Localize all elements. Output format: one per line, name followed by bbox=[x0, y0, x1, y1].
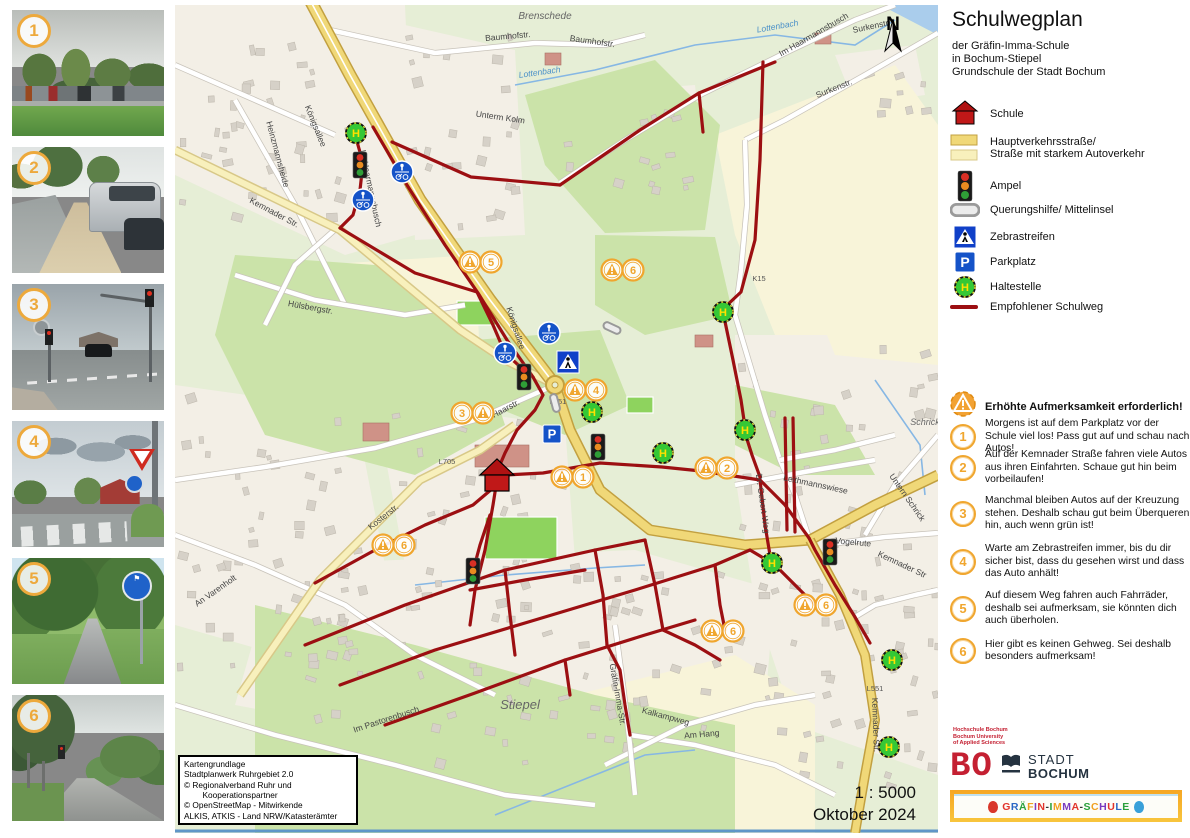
building bbox=[409, 59, 415, 65]
map-label-k15: K15 bbox=[752, 274, 765, 283]
map-label-baumhofstr-: Baumhofstr. bbox=[485, 29, 531, 43]
building bbox=[458, 223, 463, 230]
photo-3: 3 bbox=[12, 284, 164, 410]
north-arrow-icon bbox=[876, 17, 910, 61]
building bbox=[880, 345, 887, 354]
book-icon bbox=[1000, 753, 1022, 779]
building bbox=[904, 744, 910, 752]
warning-text: Manchmal bleiben Autos auf der Kreuzung … bbox=[985, 495, 1190, 533]
traffic-light-icon bbox=[950, 170, 980, 202]
svg-text:H: H bbox=[352, 128, 360, 140]
building bbox=[814, 406, 824, 415]
svg-text:6: 6 bbox=[630, 265, 636, 277]
photo-6-number-badge: 6 bbox=[17, 699, 51, 733]
traffic-light-icon bbox=[353, 152, 367, 178]
svg-text:H: H bbox=[768, 558, 776, 570]
building bbox=[357, 671, 362, 676]
building bbox=[492, 55, 503, 65]
warning-marker-2: 2 bbox=[696, 458, 738, 479]
warning-number-badge: 4 bbox=[950, 549, 976, 575]
building bbox=[777, 728, 787, 736]
building bbox=[935, 643, 938, 650]
svg-text:H: H bbox=[888, 655, 896, 667]
building bbox=[308, 654, 317, 662]
large-building bbox=[695, 335, 713, 347]
page-title: Schulwegplan bbox=[952, 8, 1083, 32]
building bbox=[897, 91, 903, 96]
major-road-swatch bbox=[950, 133, 980, 163]
building bbox=[615, 576, 621, 581]
building bbox=[921, 107, 931, 114]
traffic-light-icon bbox=[517, 364, 531, 390]
building bbox=[877, 110, 886, 117]
building bbox=[909, 387, 918, 397]
building bbox=[511, 186, 520, 194]
svg-text:H: H bbox=[719, 307, 727, 319]
bochum-text: BOCHUM bbox=[1028, 766, 1090, 781]
building bbox=[435, 580, 442, 587]
building bbox=[341, 587, 348, 592]
legend-item-parkplatz: P Parkplatz bbox=[950, 252, 1036, 272]
building bbox=[205, 451, 210, 457]
school-icon bbox=[950, 100, 980, 128]
building bbox=[295, 531, 303, 538]
warning-marker-6: 6 bbox=[373, 535, 415, 556]
stadt-text: STADT bbox=[1028, 752, 1075, 767]
building bbox=[907, 710, 918, 716]
legend-item-querungshilfe: Querungshilfe/ Mittelinsel bbox=[950, 203, 1114, 217]
building bbox=[335, 418, 342, 426]
building bbox=[862, 591, 867, 600]
warning-number-badge: 3 bbox=[950, 501, 976, 527]
shared-path-sign-icon: ⚑ bbox=[122, 571, 152, 601]
legend-item-haltestelle: H Haltestelle bbox=[950, 275, 1041, 299]
building bbox=[522, 760, 528, 765]
legend-panel: Schulwegplan der Gräfin-Imma-Schule in B… bbox=[948, 0, 1190, 838]
map-scale: 1 : 5000 bbox=[855, 783, 916, 803]
building bbox=[790, 640, 797, 647]
traffic-light-icon bbox=[466, 558, 480, 584]
building bbox=[349, 649, 358, 655]
attribution-line: © Regionalverband Ruhr und bbox=[184, 780, 352, 790]
building bbox=[880, 98, 892, 108]
svg-text:P: P bbox=[548, 427, 557, 442]
building bbox=[180, 138, 186, 146]
building bbox=[256, 48, 265, 55]
legend-label: Haltestelle bbox=[990, 281, 1041, 293]
building bbox=[285, 652, 292, 657]
crossing-aid-icon bbox=[602, 321, 621, 335]
building bbox=[335, 468, 342, 474]
building bbox=[921, 81, 926, 87]
building bbox=[564, 141, 572, 147]
building bbox=[248, 540, 258, 548]
building bbox=[683, 185, 688, 190]
building bbox=[257, 449, 266, 458]
building bbox=[179, 199, 186, 205]
subtitle-line: in Bochum-Stiepel bbox=[952, 53, 1105, 66]
building bbox=[312, 617, 321, 626]
traffic-light-icon bbox=[591, 434, 605, 460]
building bbox=[412, 76, 424, 88]
building bbox=[822, 618, 829, 626]
building bbox=[549, 710, 558, 719]
photo-1-number-badge: 1 bbox=[17, 14, 51, 48]
traffic-light-icon bbox=[823, 539, 837, 565]
roundabout-island bbox=[552, 382, 558, 388]
building bbox=[476, 155, 487, 166]
svg-text:H: H bbox=[961, 282, 969, 294]
building bbox=[431, 723, 441, 733]
map-canvas: BrenschedeStiepelSchrickBaumhofstr.Baumh… bbox=[175, 5, 938, 833]
building bbox=[884, 771, 892, 779]
legend-item-ampel: Ampel bbox=[950, 170, 1021, 202]
building bbox=[177, 663, 183, 671]
photo-5-number-badge: 5 bbox=[17, 562, 51, 596]
building bbox=[725, 646, 733, 653]
balloon-right-icon bbox=[1134, 801, 1144, 813]
building bbox=[496, 598, 508, 608]
building bbox=[903, 544, 912, 550]
legend-item-hauptstrasse: Hauptverkehrsstraße/Straße mit starkem A… bbox=[950, 133, 1145, 163]
building bbox=[837, 761, 843, 768]
photo-5: ⚑ 5 bbox=[12, 558, 164, 684]
building bbox=[358, 585, 368, 595]
legend-label: Parkplatz bbox=[990, 256, 1036, 268]
shared-path-sign-icon bbox=[352, 189, 374, 211]
warning-text: Auf der Kemnader Straße fahren viele Aut… bbox=[985, 449, 1190, 487]
building bbox=[738, 363, 746, 372]
building bbox=[270, 81, 280, 90]
building bbox=[485, 726, 496, 736]
building bbox=[206, 623, 215, 632]
svg-text:2: 2 bbox=[724, 463, 730, 475]
building bbox=[331, 710, 340, 719]
building bbox=[928, 763, 938, 772]
svg-text:6: 6 bbox=[823, 600, 829, 612]
building bbox=[406, 605, 410, 610]
stadt-bochum-logo: STADT BOCHUM bbox=[1000, 753, 1090, 781]
legend-item-schule: Schule bbox=[950, 100, 1024, 128]
svg-text:H: H bbox=[588, 407, 596, 419]
building bbox=[633, 698, 639, 705]
building bbox=[187, 591, 196, 598]
zebra-crossing-icon bbox=[950, 226, 980, 248]
warning-item-5: 5 Auf diesem Weg fahren auch Fahrräder, … bbox=[950, 590, 1190, 628]
warnings-header-text: Erhöhte Aufmerksamkeit erforderlich! bbox=[985, 401, 1183, 413]
photo-3-number-badge: 3 bbox=[17, 288, 51, 322]
building bbox=[813, 584, 823, 593]
building bbox=[231, 123, 238, 132]
building bbox=[199, 436, 204, 443]
attribution-line: ALKIS, ATKIS - Land NRW/Katasterämter bbox=[184, 811, 352, 821]
bus-stop-icon: H bbox=[882, 650, 902, 670]
building bbox=[417, 448, 423, 457]
map-label-l551: L551 bbox=[867, 684, 884, 693]
legend-label: Schule bbox=[990, 108, 1024, 120]
legend-label: Empfohlener Schulweg bbox=[990, 301, 1103, 313]
building bbox=[846, 425, 853, 432]
schulwegplan-page: { "panel": { "title": "Schulwegplan", "s… bbox=[0, 0, 1190, 838]
school-banner: GRÄFIN-IMMA-SCHULE bbox=[950, 790, 1182, 822]
building bbox=[288, 42, 297, 51]
large-building bbox=[363, 423, 389, 441]
map-label-l705: L705 bbox=[439, 457, 456, 466]
building bbox=[770, 411, 776, 418]
north-arrow: N bbox=[876, 17, 910, 36]
building bbox=[903, 606, 914, 613]
page-subtitle: der Gräfin-Imma-Schule in Bochum-Stiepel… bbox=[952, 40, 1105, 79]
legend-label: Zebrastreifen bbox=[990, 231, 1055, 243]
building bbox=[214, 128, 220, 137]
building bbox=[470, 663, 477, 668]
bus-stop-icon: H bbox=[653, 443, 673, 463]
building bbox=[297, 62, 308, 68]
building bbox=[300, 155, 305, 163]
building bbox=[434, 758, 446, 770]
warning-text: Warte am Zebrastreifen immer, bis du dir… bbox=[985, 543, 1190, 581]
building bbox=[511, 494, 521, 505]
svg-text:5: 5 bbox=[488, 257, 494, 269]
bus-stop-icon: H bbox=[762, 553, 782, 573]
warning-item-6: 6 Hier gibt es keinen Gehweg. Sei deshal… bbox=[950, 638, 1190, 664]
building bbox=[611, 598, 621, 608]
svg-text:4: 4 bbox=[593, 385, 600, 397]
legend-label: Ampel bbox=[990, 180, 1021, 192]
large-building bbox=[545, 53, 561, 65]
building bbox=[604, 736, 614, 743]
hochschule-bochum-logo: Hochschule Bochum Bochum University of A… bbox=[953, 727, 1008, 747]
building bbox=[816, 736, 824, 742]
building bbox=[223, 633, 233, 641]
warning-text: Hier gibt es keinen Gehweg. Sei deshalb … bbox=[985, 639, 1190, 664]
building bbox=[506, 132, 511, 138]
building bbox=[653, 670, 660, 678]
building bbox=[773, 521, 781, 531]
building bbox=[231, 212, 244, 222]
bus-stop-icon: H bbox=[582, 402, 602, 422]
shared-path-sign-icon bbox=[538, 322, 560, 344]
building bbox=[530, 475, 536, 480]
bus-stop-icon: H bbox=[346, 123, 366, 143]
svg-text:6: 6 bbox=[730, 626, 736, 638]
building bbox=[651, 186, 660, 195]
shared-path-sign-icon bbox=[391, 161, 413, 183]
sports-field bbox=[485, 517, 557, 559]
building bbox=[859, 424, 865, 430]
svg-text:P: P bbox=[960, 254, 969, 270]
warning-number-badge: 1 bbox=[950, 424, 976, 450]
map-label-stiepel: Stiepel bbox=[500, 697, 541, 712]
attribution-line: Kartengrundlage bbox=[184, 759, 352, 769]
building bbox=[326, 618, 331, 624]
warning-number-badge: 6 bbox=[950, 638, 976, 664]
photo-1: 1 bbox=[12, 10, 164, 136]
zebra-crossing-icon bbox=[557, 351, 579, 373]
building bbox=[759, 592, 770, 598]
bus-stop-icon: H bbox=[950, 275, 980, 299]
building bbox=[928, 639, 933, 647]
building bbox=[491, 613, 499, 622]
building bbox=[208, 96, 214, 102]
bus-stop-icon: H bbox=[713, 302, 733, 322]
building bbox=[768, 677, 778, 686]
bus-stop-icon: H bbox=[879, 737, 899, 757]
warning-item-3: 3 Manchmal bleiben Autos auf der Kreuzun… bbox=[950, 495, 1190, 533]
photo-4: 4 bbox=[12, 421, 164, 547]
legend-item-schulweg: Empfohlener Schulweg bbox=[950, 301, 1103, 313]
legend-label: Querungshilfe/ Mittelinsel bbox=[990, 204, 1114, 216]
building bbox=[834, 620, 844, 631]
building bbox=[304, 191, 309, 197]
parking-icon: P bbox=[543, 425, 561, 443]
building bbox=[905, 106, 913, 115]
building bbox=[654, 572, 664, 579]
sports-field bbox=[627, 397, 653, 413]
building bbox=[275, 605, 281, 614]
map-attribution: Kartengrundlage Stadtplanwerk Ruhrgebiet… bbox=[178, 755, 358, 825]
route-line-icon bbox=[950, 303, 980, 311]
crossing-aid-icon bbox=[950, 203, 980, 217]
building bbox=[223, 132, 230, 138]
balloon-left-icon bbox=[988, 801, 998, 813]
map-label-schrick: Schrick bbox=[910, 417, 938, 427]
legend-label: Hauptverkehrsstraße/Straße mit starkem A… bbox=[990, 136, 1145, 160]
building bbox=[501, 86, 510, 93]
building bbox=[483, 137, 491, 147]
building bbox=[411, 605, 420, 611]
warning-number-badge: 2 bbox=[950, 455, 976, 481]
svg-text:3: 3 bbox=[459, 408, 465, 420]
building bbox=[449, 129, 458, 137]
building bbox=[573, 575, 581, 583]
building bbox=[230, 663, 235, 668]
building bbox=[405, 35, 413, 41]
shared-path-sign-icon bbox=[494, 342, 516, 364]
building bbox=[584, 572, 594, 582]
building bbox=[661, 587, 669, 595]
photo-6: 6 bbox=[12, 695, 164, 821]
map-date: Oktober 2024 bbox=[813, 805, 916, 825]
map-label-im-haarmannsbusch: Im Haarmannsbusch bbox=[777, 10, 850, 58]
building bbox=[306, 500, 316, 511]
svg-text:1: 1 bbox=[580, 472, 586, 484]
building bbox=[821, 671, 830, 676]
building bbox=[502, 739, 507, 746]
building bbox=[579, 641, 590, 648]
photo-2: 2 bbox=[12, 147, 164, 273]
svg-text:H: H bbox=[659, 448, 667, 460]
building bbox=[181, 440, 192, 450]
attribution-line: Kooperationspartner bbox=[184, 790, 352, 800]
subtitle-line: der Gräfin-Imma-Schule bbox=[952, 40, 1105, 53]
warning-item-2: 2 Auf der Kemnader Straße fahren viele A… bbox=[950, 449, 1190, 487]
landuse-area bbox=[595, 235, 733, 335]
building bbox=[465, 476, 475, 486]
building bbox=[474, 668, 482, 676]
building bbox=[295, 521, 305, 529]
building bbox=[426, 567, 434, 575]
photo-2-number-badge: 2 bbox=[17, 151, 51, 185]
building bbox=[266, 455, 271, 460]
building bbox=[566, 162, 574, 171]
school-banner-text: GRÄFIN-IMMA-SCHULE bbox=[1002, 801, 1130, 813]
building bbox=[799, 752, 808, 763]
svg-text:H: H bbox=[885, 742, 893, 754]
legend-item-zebrastreifen: Zebrastreifen bbox=[950, 226, 1055, 248]
building bbox=[587, 734, 595, 739]
attribution-line: © OpenStreetMap - Mitwirkende bbox=[184, 800, 352, 810]
map-label-brenschede: Brenschede bbox=[518, 11, 572, 22]
map-label-lottenbach: Lottenbach bbox=[756, 17, 799, 34]
parking-icon: P bbox=[950, 252, 980, 272]
warning-marker-5: 5 bbox=[460, 252, 502, 273]
warning-number-badge: 5 bbox=[950, 596, 976, 622]
attribution-line: Stadtplanwerk Ruhrgebiet 2.0 bbox=[184, 769, 352, 779]
svg-text:6: 6 bbox=[401, 540, 407, 552]
subtitle-line: Grundschule der Stadt Bochum bbox=[952, 66, 1105, 79]
photo-4-number-badge: 4 bbox=[17, 425, 51, 459]
building bbox=[524, 605, 529, 610]
warning-item-4: 4 Warte am Zebrastreifen immer, bis du d… bbox=[950, 543, 1190, 581]
building bbox=[666, 152, 676, 158]
building bbox=[339, 614, 345, 622]
building bbox=[701, 688, 711, 695]
svg-text:H: H bbox=[741, 425, 749, 437]
bo-logo: BO bbox=[950, 748, 993, 786]
schulwegplan-map: BrenschedeStiepelSchrickBaumhofstr.Baumh… bbox=[175, 5, 938, 833]
bus-stop-icon: H bbox=[735, 420, 755, 440]
warning-marker-1: 1 bbox=[552, 467, 594, 488]
warning-text: Auf diesem Weg fahren auch Fahrräder, de… bbox=[985, 590, 1190, 628]
building bbox=[590, 705, 600, 711]
building bbox=[625, 594, 634, 603]
building bbox=[820, 435, 829, 444]
building bbox=[399, 482, 407, 486]
